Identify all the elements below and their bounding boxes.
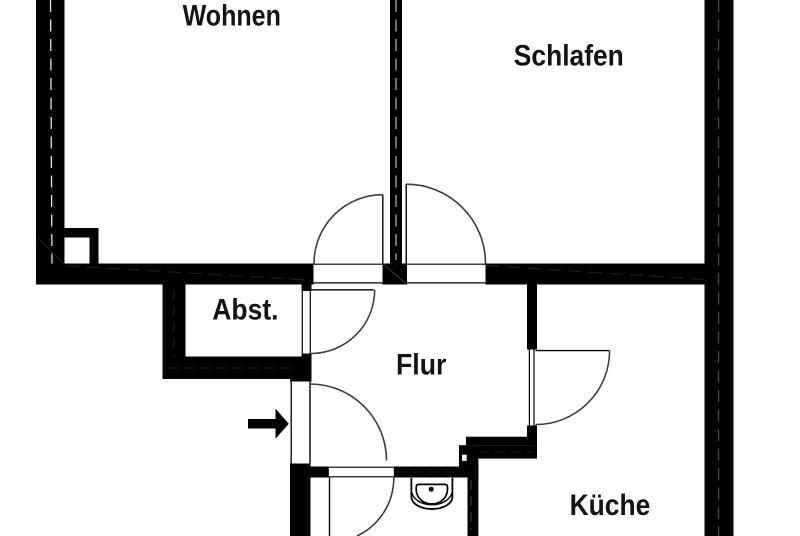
svg-text:Flur: Flur [396, 348, 446, 382]
svg-text:Abst.: Abst. [212, 293, 278, 327]
svg-text:Wohnen: Wohnen [183, 0, 281, 32]
svg-text:Schlafen: Schlafen [514, 38, 624, 72]
svg-text:Küche: Küche [570, 488, 651, 522]
